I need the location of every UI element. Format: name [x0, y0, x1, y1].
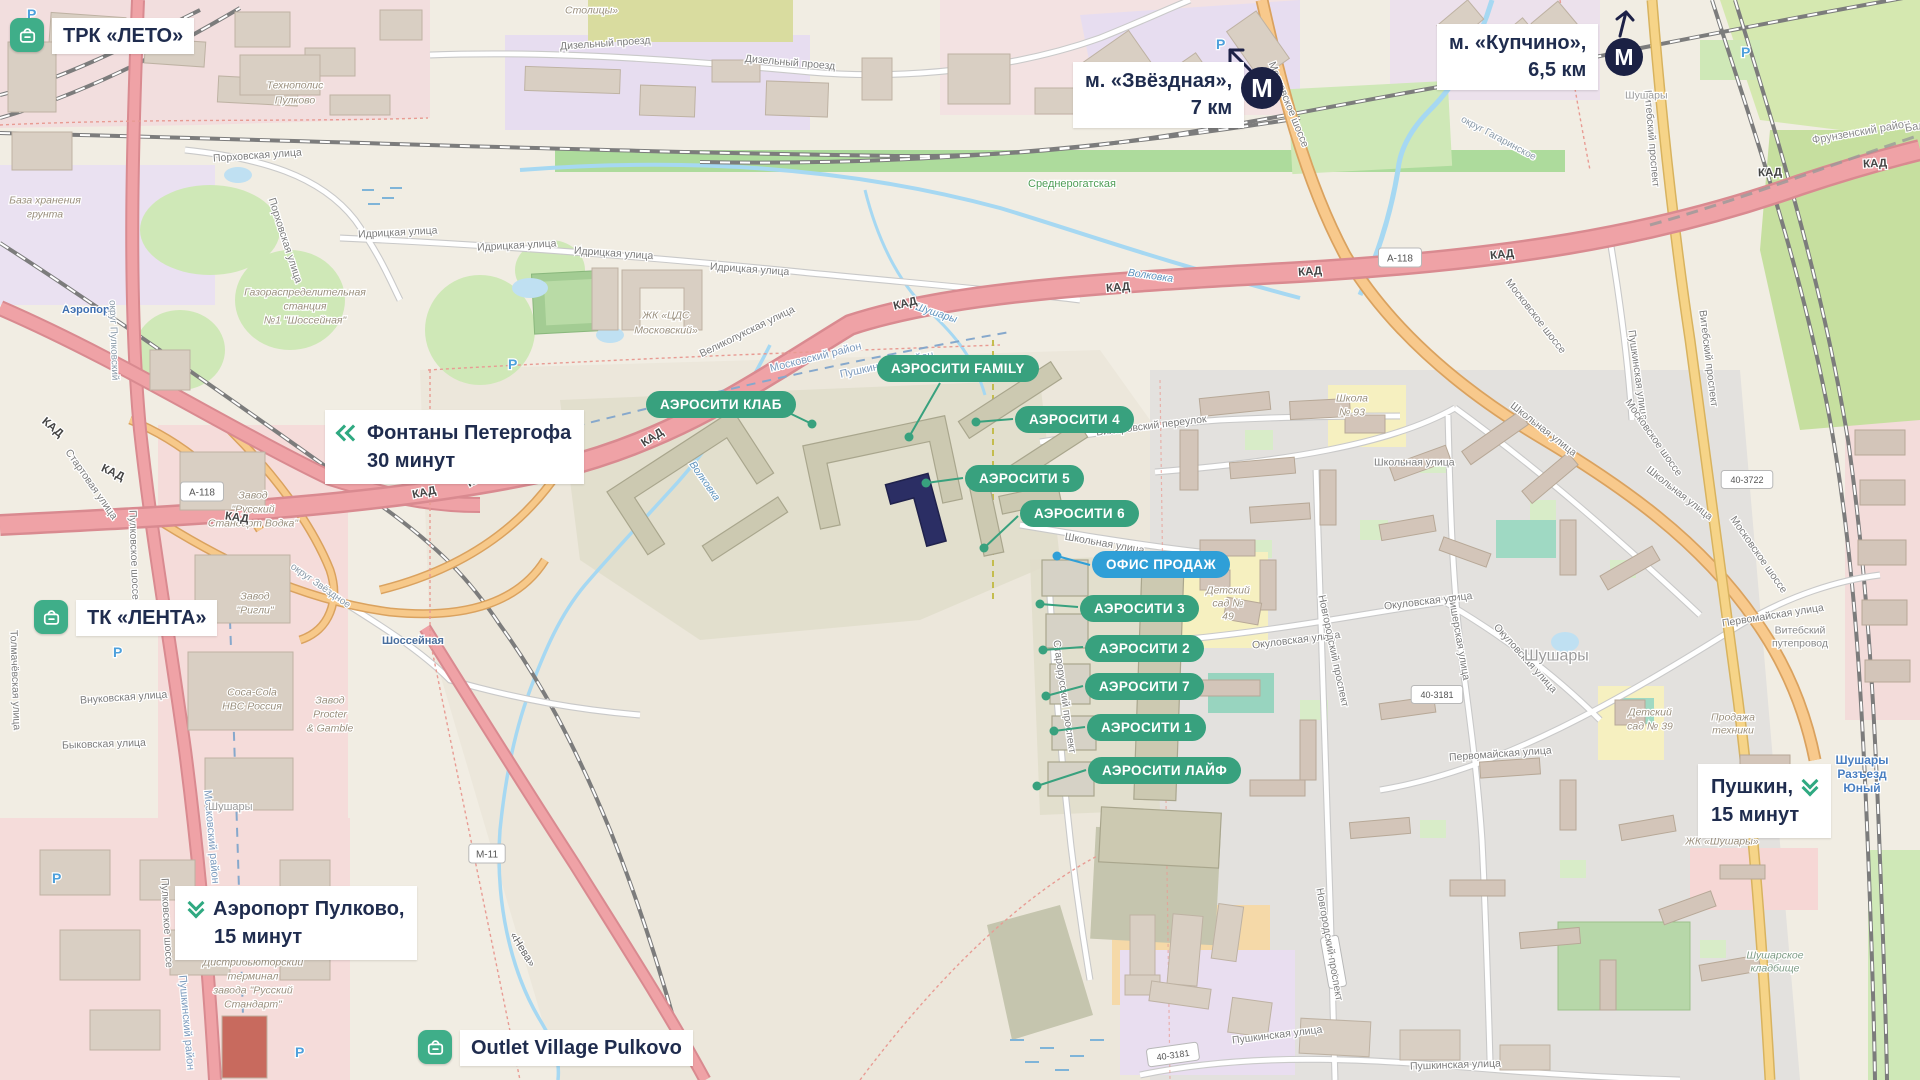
complex-pill[interactable]: АЭРОСИТИ 4: [1015, 406, 1134, 433]
complex-pill[interactable]: АЭРОСИТИ 2: [1085, 635, 1204, 662]
poi-badge-outlet-village[interactable]: Outlet Village Pulkovo: [418, 1030, 693, 1066]
map-label: Витебский: [1775, 625, 1826, 637]
map-label: ЖК «ЦДС: [641, 310, 690, 322]
map-label: путепровод: [1772, 638, 1828, 650]
map-label: КАД: [1490, 248, 1515, 262]
map-label: Столицы»: [565, 5, 618, 17]
map-label: & Gamble: [307, 723, 354, 735]
map-label: Завод: [315, 695, 344, 707]
route-time: 15 минут: [214, 923, 404, 951]
map-label: 49: [1222, 611, 1234, 623]
map-label: 40-3722: [1730, 475, 1763, 485]
map-label: Завод: [240, 591, 269, 603]
building-dot: [1036, 600, 1045, 609]
map-label: Procter: [313, 709, 347, 721]
map-label: А-118: [189, 488, 215, 499]
chevrons-down-icon: [190, 902, 202, 916]
complex-pill[interactable]: АЭРОСИТИ 7: [1085, 673, 1204, 700]
map-label: Шушары: [1524, 648, 1589, 665]
map-label: Детский: [1205, 585, 1250, 597]
map-label: сад №: [1212, 598, 1243, 610]
complex-pill[interactable]: АЭРОСИТИ 1: [1087, 714, 1206, 741]
shopping-bag-icon: [418, 1030, 452, 1064]
map-label: станция: [284, 301, 327, 313]
map-label: Среднерогатская: [1028, 178, 1116, 190]
map-label: № 93: [1339, 407, 1365, 419]
map-label: Р: [508, 356, 517, 372]
map-label: Шушарское: [1746, 950, 1803, 962]
map-label: завода "Русский: [212, 985, 293, 997]
poi-label: ТК «ЛЕНТА»: [76, 600, 217, 636]
map-label: Шушары: [1625, 90, 1668, 102]
map-label: Р: [113, 644, 122, 660]
poi-label: Outlet Village Pulkovo: [460, 1030, 693, 1066]
map-label: М-11: [476, 850, 498, 861]
building-dot: [808, 420, 817, 429]
map-label: HBC Россия: [222, 701, 282, 713]
map-label: Московский»: [634, 325, 698, 337]
building-dot: [1039, 646, 1048, 655]
sales-office-pill[interactable]: ОФИС ПРОДАЖ: [1092, 551, 1230, 578]
map-label: КАД: [1863, 157, 1888, 170]
route-destination: Аэропорт Пулково,: [213, 895, 404, 923]
building-dot: [1050, 727, 1059, 736]
map-canvas[interactable]: Дизельный проездДизельный проездСтолицы»…: [0, 0, 1920, 1080]
map-label: КАД: [1758, 167, 1782, 180]
shopping-bag-icon: [34, 600, 68, 634]
building-dot: [905, 433, 914, 442]
map-label: Детский: [1627, 707, 1672, 719]
metro-icon: М: [1605, 38, 1643, 76]
route-badge-peterhof[interactable]: Фонтаны Петергофа 30 минут: [325, 410, 584, 484]
map-label: Шоссейная: [382, 635, 444, 647]
map-label: Шушары: [1836, 753, 1889, 767]
map-label: №1 "Шоссейная": [264, 315, 348, 327]
map-label: Р: [295, 1044, 304, 1060]
metro-distance: 6,5 км: [1449, 57, 1586, 84]
map-label: А-118: [1387, 254, 1413, 265]
map-label: Технополис: [267, 80, 324, 92]
poi-badge-tk-lenta[interactable]: ТК «ЛЕНТА»: [34, 600, 217, 636]
map-label: терминал: [228, 971, 279, 983]
shopping-bag-icon: [10, 18, 44, 52]
building-dot: [922, 479, 931, 488]
metro-icon: М: [1241, 67, 1283, 109]
complex-pill[interactable]: АЭРОСИТИ 5: [965, 465, 1084, 492]
metro-name: м. «Купчино»,: [1449, 30, 1586, 57]
map-label: 40-3181: [1420, 690, 1453, 700]
map-label: КАД: [1106, 281, 1131, 295]
map-label: Пулково: [275, 95, 316, 107]
route-badge-pushkin[interactable]: Пушкин, 15 минут: [1698, 764, 1831, 838]
poi-badge-trk-leto[interactable]: ТРК «ЛЕТО»: [10, 18, 194, 54]
map-label: База хранения: [9, 195, 81, 207]
map-label: Завод: [238, 490, 267, 502]
building-dot: [972, 418, 981, 427]
building-dot: [1033, 782, 1042, 791]
building-dot: [980, 544, 989, 553]
map-label: Стандарт Водка": [208, 518, 299, 530]
route-destination: Пушкин,: [1711, 773, 1793, 801]
route-time: 15 минут: [1711, 801, 1818, 829]
complex-pill[interactable]: АЭРОСИТИ ЛАЙФ: [1088, 757, 1241, 784]
map-label: Разъезд: [1837, 767, 1887, 781]
map-label: "Ригли": [236, 605, 274, 617]
map-label: Юный: [1843, 781, 1880, 795]
complex-pill[interactable]: АЭРОСИТИ 3: [1080, 595, 1199, 622]
map-label: техники: [1712, 725, 1754, 737]
chevrons-left-icon: [338, 427, 356, 439]
complex-pill[interactable]: АЭРОСИТИ FAMILY: [877, 355, 1039, 382]
building-dot: [1042, 692, 1051, 701]
map-label: Coca-Cola: [227, 687, 277, 699]
map-label: Шушары: [208, 801, 253, 813]
metro-badge-kupchino[interactable]: м. «Купчино», 6,5 км: [1437, 24, 1598, 90]
map-label: Школа: [1336, 393, 1368, 405]
building-dot: [1053, 552, 1062, 561]
map-label: кладбище: [1750, 963, 1799, 975]
route-badge-pulkovo-airport[interactable]: Аэропорт Пулково, 15 минут: [175, 886, 417, 960]
chevrons-down-icon: [1804, 780, 1816, 794]
route-destination: Фонтаны Петергофа: [367, 419, 571, 447]
map-label: сад № 39: [1627, 721, 1673, 733]
map-label: грунта: [27, 209, 63, 221]
map-label: Стандарт": [224, 999, 283, 1011]
metro-badge-zvezdnaya[interactable]: м. «Звёздная», 7 км: [1073, 62, 1244, 128]
map-label: Р: [1741, 44, 1750, 60]
complex-pill[interactable]: АЭРОСИТИ КЛАБ: [646, 391, 796, 418]
map-label: Р: [52, 870, 61, 886]
map-label: Газораспределительная: [244, 287, 366, 299]
route-time: 30 минут: [367, 447, 571, 475]
complex-pill[interactable]: АЭРОСИТИ 6: [1020, 500, 1139, 527]
map-label: КАД: [1298, 265, 1323, 279]
map-label: Р: [1216, 36, 1225, 52]
map-label: Продажа: [1711, 712, 1755, 724]
metro-name: м. «Звёздная»,: [1085, 68, 1232, 95]
poi-label: ТРК «ЛЕТО»: [52, 18, 194, 54]
map-label: Школьная улица: [1374, 457, 1455, 469]
metro-distance: 7 км: [1085, 95, 1232, 122]
